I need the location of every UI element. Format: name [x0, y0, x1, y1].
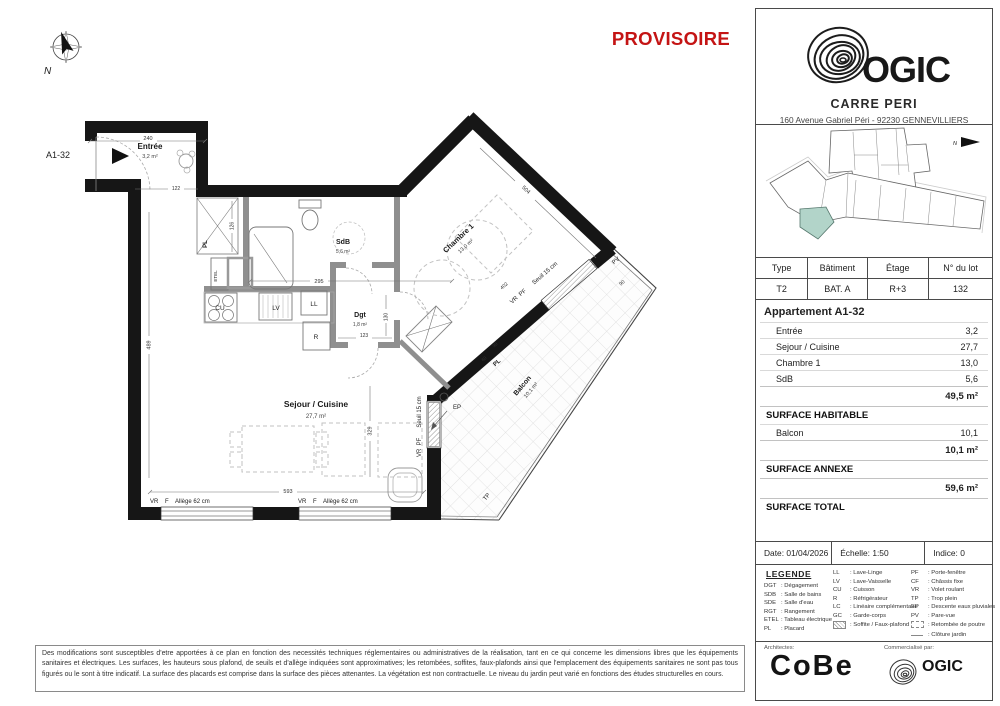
area-row: Sejour / Cuisine 27,7	[760, 338, 988, 354]
vr-pf-seuil-label-vertical: VR PF Seuil 15 cm	[417, 396, 423, 457]
fixtures	[177, 150, 452, 502]
site-north-icon: N	[953, 137, 980, 147]
vr-f-allege-label-1: VR F Allège 62 cm	[150, 499, 210, 505]
partition-walls	[204, 197, 449, 388]
legend-item: VRVolet roulant	[911, 586, 995, 595]
provisoire-stamp: PROVISOIRE	[575, 28, 730, 50]
room-area-sejour: 27,7 m²	[306, 414, 326, 420]
legend-item: Retombée de poutre	[911, 621, 995, 632]
vr-f-allege-label-2: VR F Allège 62 cm	[298, 499, 358, 505]
dim-329: 329	[368, 426, 374, 435]
legend-column-1: DGTDégagement SDBSalle de bains SDESalle…	[764, 582, 832, 634]
logos-panel: Architectes: CoBe Commercialisé par: OGI…	[755, 641, 993, 701]
legend-item: LCLinéaire complémentaire	[833, 603, 918, 612]
legend-item: SDESalle d'eau	[764, 599, 832, 608]
project-name: CARRE PERI	[756, 97, 992, 111]
ll-label: LL	[310, 301, 318, 308]
legend-item: DGTDégagement	[764, 582, 832, 591]
dim-130: 130	[384, 313, 390, 322]
unit-label: A1-32	[46, 150, 70, 160]
site-plan-drawing: N	[756, 125, 992, 257]
room-area-dgt: 1,8 m²	[353, 322, 368, 328]
lot-table-header-row: Type Bâtiment Étage N° du lot	[756, 258, 992, 279]
legend-item: PLPlacard	[764, 625, 832, 634]
area-row-value: 27,7	[960, 342, 978, 352]
soffite-hatch-symbol	[833, 621, 846, 629]
ogic-small-wordmark: OGIC	[922, 658, 963, 676]
meta-panel: Date: 01/04/2026 Échelle: 1:50 Indice: 0	[755, 541, 993, 565]
north-label: N	[44, 66, 52, 77]
surface-annexe-value: 10,1 m²	[760, 440, 988, 460]
meta-scale: Échelle: 1:50	[832, 542, 925, 564]
area-row-value: 13,0	[960, 358, 978, 368]
surface-total-value: 59,6 m²	[760, 478, 988, 498]
lot-value-type: T2	[756, 279, 808, 299]
lot-table-value-row: T2 BAT. A R+3 132	[756, 279, 992, 299]
unit-marker: A1-32	[46, 148, 129, 164]
areas-panel: Appartement A1-32 Entrée 3,2 Sejour / Cu…	[755, 299, 993, 542]
lot-header-batiment: Bâtiment	[808, 258, 867, 278]
room-area-sdb: 5,6 m²	[336, 249, 351, 255]
cobe-logo: CoBe	[770, 650, 854, 683]
disclaimer-text: Des modifications sont susceptibles d'et…	[35, 645, 745, 692]
svg-text:N: N	[953, 141, 957, 147]
floor-plan: 240 122 295 126 123 130 329 593 489 504 …	[0, 0, 750, 650]
area-row-label: Entrée	[776, 326, 803, 336]
area-row: Chambre 1 13,0	[760, 354, 988, 370]
legend-item: EPDescente eaux pluviales	[911, 603, 995, 612]
lot-value-etage: R+3	[868, 279, 930, 299]
legend-item: Soffite / Faux-plafond	[833, 621, 918, 633]
legend-item: ETELTableau électrique	[764, 616, 832, 625]
lot-value-batiment: BAT. A	[808, 279, 867, 299]
r-label: R	[314, 334, 319, 341]
cloture-symbol	[911, 635, 923, 636]
area-row: Entrée 3,2	[760, 322, 988, 338]
balcony-floor	[441, 247, 656, 520]
dim-489: 489	[147, 340, 153, 349]
room-area-entree: 3,2 m²	[142, 154, 158, 160]
areas-title: Appartement A1-32	[756, 300, 992, 322]
etel-label: ETEL	[213, 270, 218, 282]
highlighted-unit	[800, 207, 834, 239]
area-row-label: Sejour / Cuisine	[776, 342, 840, 352]
legend-item: LVLave-Vaisselle	[833, 578, 918, 587]
area-row-label: Balcon	[776, 428, 804, 438]
lot-table: Type Bâtiment Étage N° du lot T2 BAT. A …	[755, 257, 993, 300]
site-key-plan: N	[755, 124, 993, 258]
dim-122: 122	[172, 186, 181, 192]
legend-item: TPTrop plein	[911, 595, 995, 604]
cu-label: CU	[215, 305, 225, 312]
lot-header-etage: Étage	[868, 258, 930, 278]
legend-item: Clôture jardin	[911, 631, 995, 640]
lv-label: LV	[272, 305, 280, 312]
legend-panel: LEGENDE DGTDégagement SDBSalle de bains …	[755, 564, 993, 642]
legend-column-2: LLLave-Linge LVLave-Vaisselle CUCuisson …	[833, 569, 918, 632]
pl-label: PL	[203, 240, 209, 248]
lot-value-numlot: 132	[929, 279, 992, 299]
area-row-label: SdB	[776, 374, 793, 384]
brand-wordmark: OGIC	[862, 49, 950, 91]
legend-item: RRéfrigérateur	[833, 595, 918, 604]
logo-panel: OGIC CARRE PERI 160 Avenue Gabriel Péri …	[755, 8, 993, 125]
surface-habitable-value: 49,5 m²	[760, 386, 988, 406]
area-row-value: 5,6	[965, 374, 978, 384]
surface-total-label: SURFACE TOTAL	[760, 498, 988, 516]
area-row: SdB 5,6	[760, 370, 988, 386]
room-label-entree: Entrée	[138, 142, 163, 151]
legend-title: LEGENDE	[766, 569, 811, 579]
dim-123: 123	[360, 333, 369, 339]
dim-593: 593	[283, 489, 292, 495]
surface-annexe-label: SURFACE ANNEXE	[760, 460, 988, 478]
dim-504: 504	[520, 185, 531, 196]
legend-item: LLLave-Linge	[833, 569, 918, 578]
area-row-value: 3,2	[965, 326, 978, 336]
unit-marker-arrow-icon	[112, 148, 129, 164]
meta-date: Date: 01/04/2026	[756, 542, 832, 564]
area-row-value: 10,1	[960, 428, 978, 438]
dim-126: 126	[230, 222, 236, 231]
ogic-small-logo-icon	[888, 656, 918, 688]
legend-item: CUCuisson	[833, 586, 918, 595]
lot-header-numlot: N° du lot	[929, 258, 992, 278]
legend-item: PFPorte-fenêtre	[911, 569, 995, 578]
retombee-symbol	[911, 621, 924, 628]
room-label-dgt: Dgt	[354, 312, 366, 319]
dim-295: 295	[314, 279, 323, 285]
lot-header-type: Type	[756, 258, 808, 278]
legend-item: PVPare-vue	[911, 612, 995, 621]
legend-item: SDBSalle de bains	[764, 591, 832, 600]
legend-item: GCGarde-corps	[833, 612, 918, 621]
commercial-caption: Commercialisé par:	[884, 645, 934, 651]
room-label-sejour: Sejour / Cuisine	[284, 399, 349, 409]
ep-label: EP	[453, 405, 461, 411]
legend-column-3: PFPorte-fenêtre CFChâssis fixe VRVolet r…	[911, 569, 995, 640]
meta-index: Indice: 0	[925, 542, 992, 564]
area-row-label: Chambre 1	[776, 358, 821, 368]
legend-item: CFChâssis fixe	[911, 578, 995, 587]
surface-habitable-label: SURFACE HABITABLE	[760, 406, 988, 424]
north-compass-icon: N	[44, 30, 82, 77]
room-label-sdb: SdB	[336, 239, 350, 246]
dim-402: 402	[499, 281, 509, 291]
legend-item: RGTRangement	[764, 608, 832, 617]
area-row: Balcon 10,1	[760, 424, 988, 440]
